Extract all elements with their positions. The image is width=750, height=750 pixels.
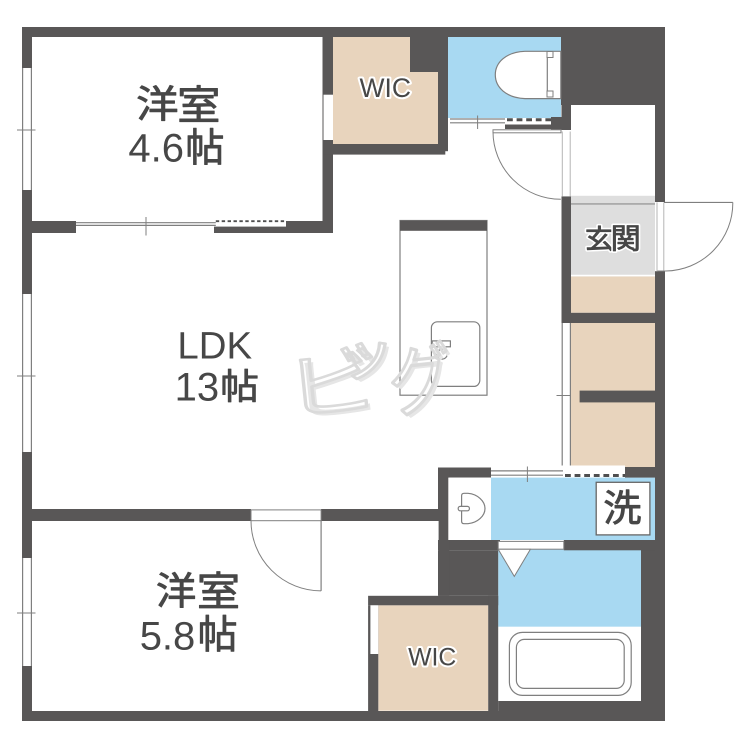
svg-text:WIC: WIC bbox=[408, 644, 456, 671]
svg-text:5.8: 5.8 bbox=[140, 615, 196, 659]
svg-text:LDK: LDK bbox=[177, 325, 252, 368]
svg-text:WIC: WIC bbox=[360, 73, 412, 103]
svg-text:4.6: 4.6 bbox=[128, 127, 184, 171]
svg-text:13: 13 bbox=[175, 366, 220, 410]
